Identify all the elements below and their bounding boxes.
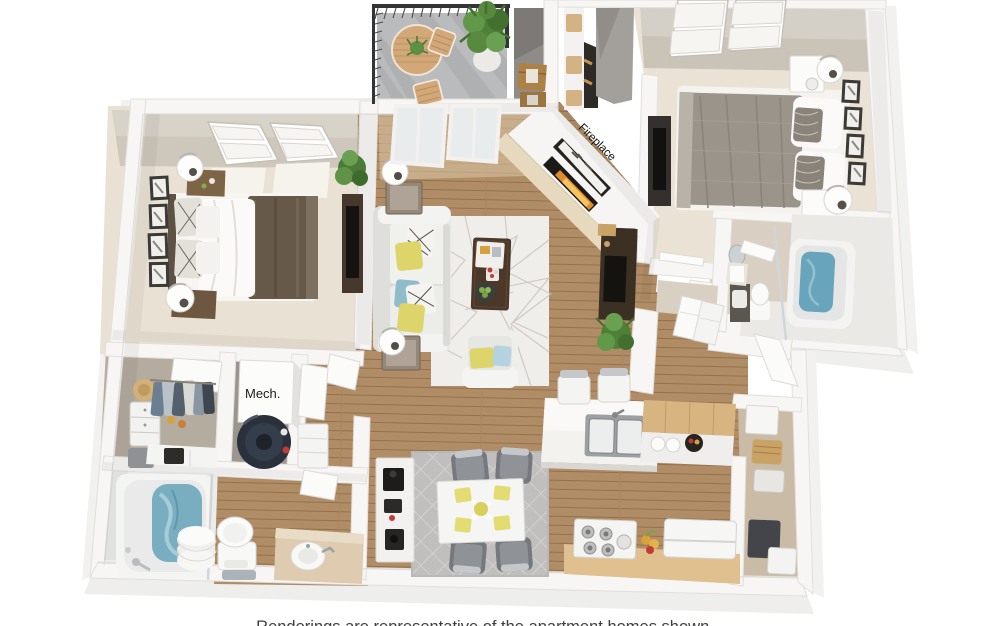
- svg-text:Renderings are representative: Renderings are representative of the apa…: [256, 618, 714, 626]
- svg-text:Mech.: Mech.: [245, 386, 280, 401]
